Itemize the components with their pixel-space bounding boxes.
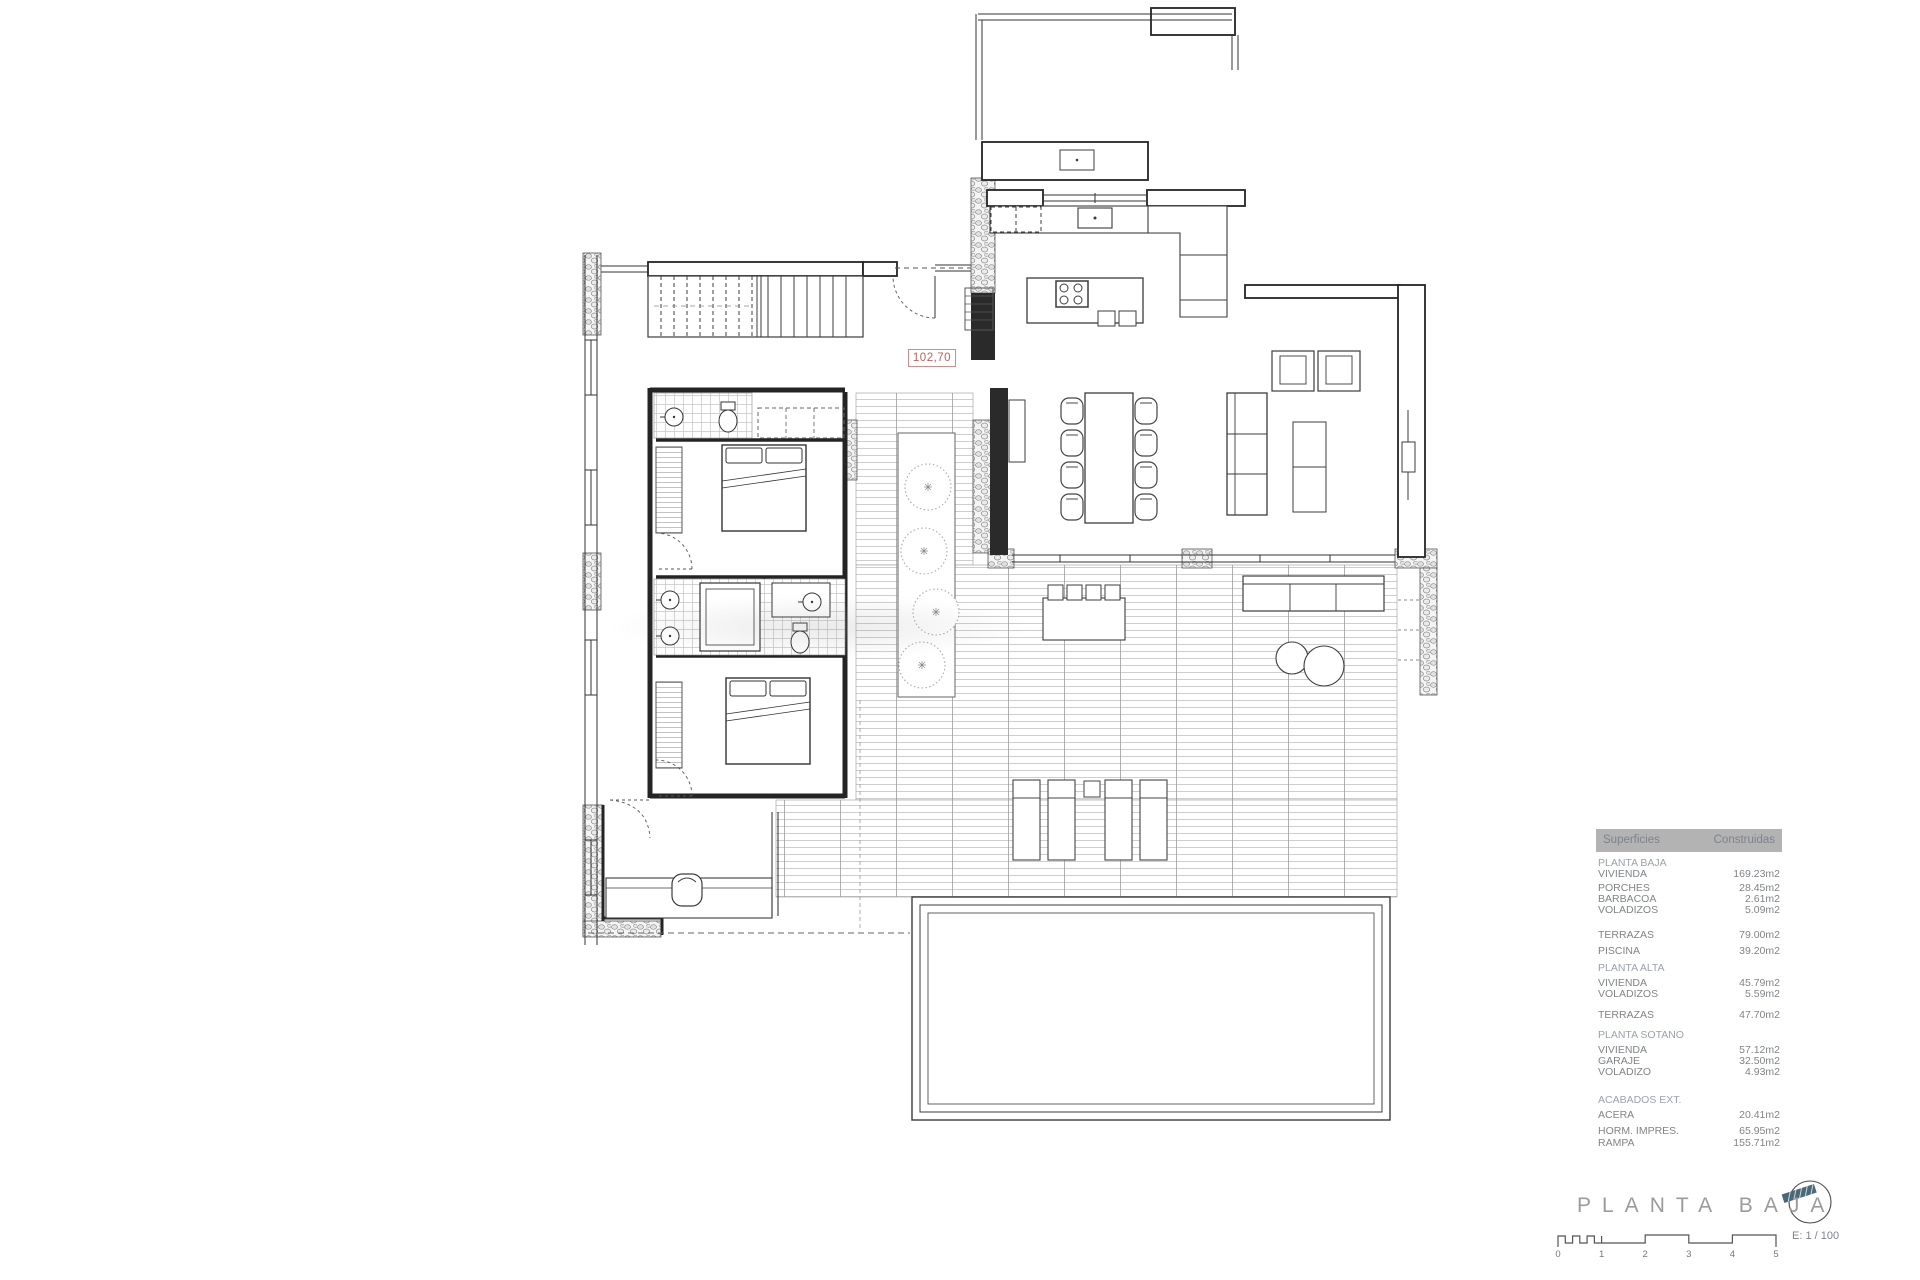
row-value: 4.93m2: [1745, 1067, 1780, 1078]
row-label: HORM. IMPRES.: [1598, 1126, 1679, 1137]
table-section-row: PLANTA ALTA: [1598, 963, 1780, 974]
round-table: [1304, 646, 1344, 686]
tree: [901, 528, 947, 574]
outdoor-sofa: [1243, 576, 1384, 611]
scale-ratio-label: E: 1 / 100: [1792, 1230, 1839, 1242]
row-label: RAMPA: [1598, 1138, 1635, 1149]
closet-dashed: [758, 408, 844, 438]
surfaces-header-col2: Construidas: [1714, 829, 1775, 852]
stool: [1119, 311, 1136, 326]
surfaces-table-header: Superficies Construidas: [1596, 829, 1782, 852]
grill-seat: [672, 874, 702, 906]
row-label: ACABADOS EXT.: [1598, 1095, 1681, 1106]
scale-tick-label: 2: [1638, 1249, 1652, 1260]
row-label: ACERA: [1598, 1110, 1634, 1121]
table-row: TERRAZAS47.70m2: [1598, 1010, 1780, 1021]
side-table: [1084, 781, 1100, 797]
staircase: [648, 276, 863, 337]
row-label: PLANTA ALTA: [1598, 963, 1665, 974]
table-row: VOLADIZOS5.09m2: [1598, 905, 1780, 916]
coffee-table: [1293, 422, 1326, 467]
row-value: 169.23m2: [1733, 869, 1780, 880]
row-value: 47.70m2: [1739, 1010, 1780, 1021]
row-label: VOLADIZOS: [1598, 905, 1658, 916]
coffee-table: [1293, 467, 1326, 512]
row-value: 79.00m2: [1739, 930, 1780, 941]
surfaces-header-col1: Superficies: [1603, 829, 1660, 852]
scale-bar[interactable]: [1558, 1235, 1776, 1247]
row-label: VOLADIZO: [1598, 1067, 1651, 1078]
round-table: [1276, 642, 1308, 674]
table-row: PISCINA39.20m2: [1598, 946, 1780, 957]
tv-cabinet: [1009, 400, 1025, 462]
table-section-row: ACABADOS EXT.: [1598, 1095, 1780, 1106]
row-label: PLANTA SOTANO: [1598, 1030, 1684, 1041]
row-value: 65.95m2: [1739, 1126, 1780, 1137]
scale-tick-label: 0: [1551, 1249, 1565, 1260]
row-label: VIVIENDA: [1598, 869, 1647, 880]
armchair: [1272, 351, 1314, 391]
table-row: ACERA20.41m2: [1598, 1110, 1780, 1121]
living-dining: [1009, 351, 1415, 523]
row-value: 155.71m2: [1733, 1138, 1780, 1149]
row-value: 5.59m2: [1745, 989, 1780, 1000]
bedroom-1: [656, 445, 806, 569]
level-dimension-label: 102,70: [908, 349, 956, 367]
bathroom-1: [654, 393, 752, 438]
slider-handle: [1402, 442, 1415, 472]
porch-barbecue: [606, 800, 778, 918]
tree: [905, 464, 951, 510]
scale-tick-label: 5: [1769, 1249, 1783, 1260]
row-label: VOLADIZOS: [1598, 989, 1658, 1000]
row-value: 5.09m2: [1745, 905, 1780, 916]
row-label: TERRAZAS: [1598, 930, 1654, 941]
table-row: VOLADIZO4.93m2: [1598, 1067, 1780, 1078]
stool: [1098, 311, 1115, 326]
row-value: 20.41m2: [1739, 1110, 1780, 1121]
table-row: VIVIENDA169.23m2: [1598, 869, 1780, 880]
scale-tick-label: 3: [1682, 1249, 1696, 1260]
page-title: PLANTA BAJA: [1577, 1194, 1835, 1218]
side-steps: [1398, 600, 1420, 660]
table-row: TERRAZAS79.00m2: [1598, 930, 1780, 941]
row-label: TERRAZAS: [1598, 1010, 1654, 1021]
armchair: [1318, 351, 1360, 391]
row-label: PISCINA: [1598, 946, 1640, 957]
watermark: [615, 596, 1025, 658]
table-row: VOLADIZOS5.59m2: [1598, 989, 1780, 1000]
table-section-row: PLANTA SOTANO: [1598, 1030, 1780, 1041]
scale-tick-label: 4: [1725, 1249, 1739, 1260]
scale-tick-label: 1: [1595, 1249, 1609, 1260]
row-value: 39.20m2: [1739, 946, 1780, 957]
bedroom-2: [656, 678, 810, 796]
sofa: [1227, 393, 1267, 515]
dining-table: [1085, 393, 1133, 523]
table-row: HORM. IMPRES.65.95m2: [1598, 1126, 1780, 1137]
pool: [912, 897, 1390, 1120]
table-row: RAMPA155.71m2: [1598, 1138, 1780, 1149]
